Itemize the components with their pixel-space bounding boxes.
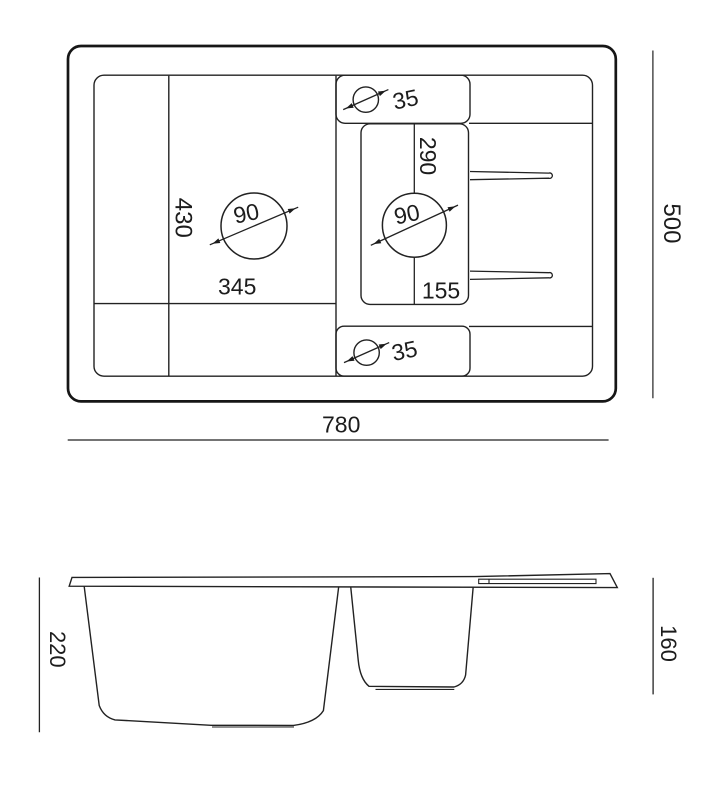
svg-text:90: 90 xyxy=(231,198,261,229)
svg-text:35: 35 xyxy=(389,335,419,366)
svg-text:155: 155 xyxy=(422,278,460,304)
svg-text:220: 220 xyxy=(45,631,70,668)
svg-text:90: 90 xyxy=(392,199,422,230)
svg-text:35: 35 xyxy=(390,84,420,115)
svg-text:345: 345 xyxy=(218,273,256,299)
svg-text:500: 500 xyxy=(658,203,685,243)
svg-text:780: 780 xyxy=(322,412,360,438)
svg-text:430: 430 xyxy=(170,198,197,238)
svg-text:290: 290 xyxy=(415,137,441,175)
svg-text:160: 160 xyxy=(656,625,681,662)
